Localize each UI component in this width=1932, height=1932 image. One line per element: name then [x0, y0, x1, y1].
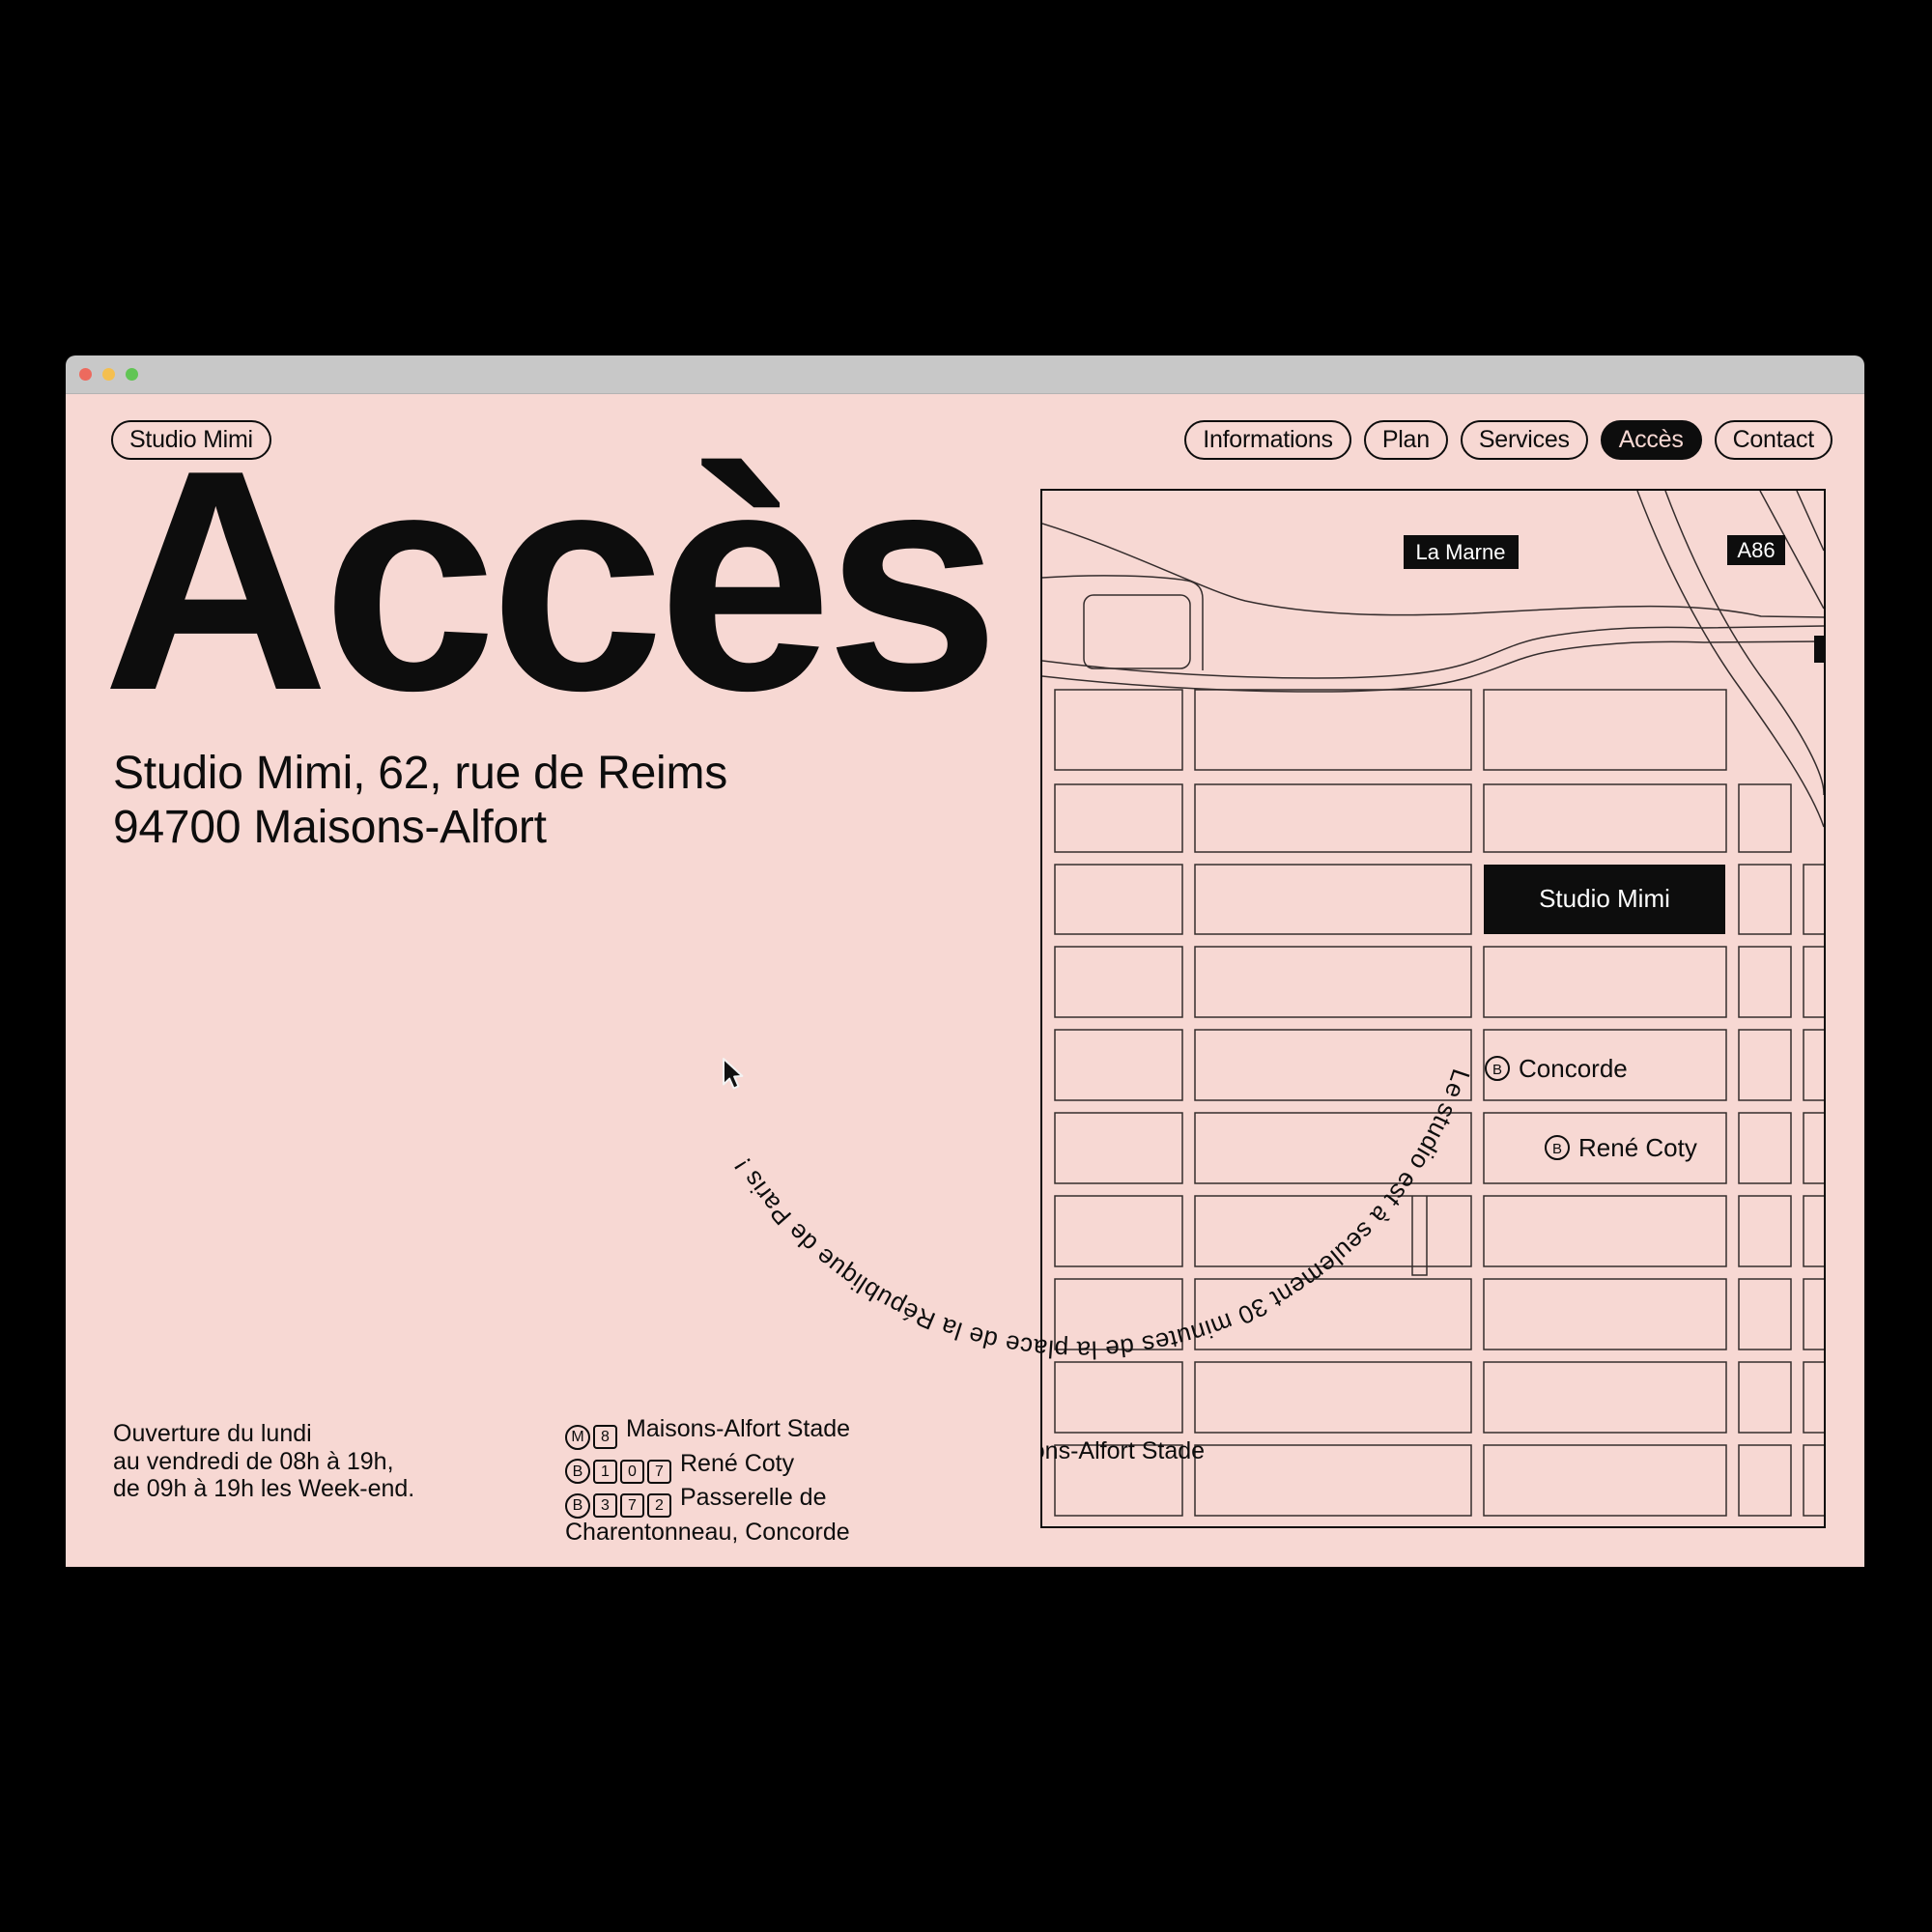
nav-item-acces[interactable]: Accès [1601, 420, 1702, 460]
studio-address: Studio Mimi, 62, rue de Reims 94700 Mais… [113, 747, 727, 855]
bus-stop-icon-letter: B [1492, 1062, 1502, 1078]
studio-marker-label: Studio Mimi [1539, 884, 1670, 913]
transit-stop-name: Maisons-Alfort Stade [626, 1415, 850, 1442]
bus-digit-icon: 1 [593, 1460, 617, 1484]
transit-line-metro: M8Maisons-Alfort Stade [565, 1415, 942, 1450]
bridge-mark [1814, 636, 1824, 663]
nav-item-plan[interactable]: Plan [1364, 420, 1448, 460]
minimize-window-button[interactable] [102, 368, 115, 381]
address-line-2: 94700 Maisons-Alfort [113, 801, 727, 855]
close-window-button[interactable] [79, 368, 92, 381]
station-rene-coty-label: René Coty [1578, 1133, 1697, 1162]
bus-digit-icon: 7 [647, 1460, 671, 1484]
metro-line-8-icon: 8 [593, 1425, 617, 1449]
curved-street-upper [1042, 626, 1824, 678]
slip-road-2 [1797, 491, 1824, 551]
hours-line-2: au vendredi de 08h à 19h, [113, 1448, 414, 1476]
bus-digit-icon: 0 [620, 1460, 644, 1484]
main-nav: Informations Plan Services Accès Contact [1184, 420, 1833, 460]
river-label: La Marne [1416, 540, 1506, 564]
curved-street-lower [1042, 641, 1824, 692]
transit-stop-name: René Coty [680, 1450, 794, 1477]
bus-digit-icon: 7 [620, 1493, 644, 1518]
mouse-cursor-icon [721, 1057, 753, 1094]
stade-label: Maisons-Alfort Stade [1042, 1437, 1205, 1464]
titlebar [66, 355, 1864, 394]
bus-digit-icon: 2 [647, 1493, 671, 1518]
transit-access-list: M8Maisons-Alfort Stade B107René Coty B37… [565, 1415, 942, 1547]
hours-line-3: de 09h à 19h les Week-end. [113, 1475, 414, 1503]
dead-end-street [1412, 1196, 1427, 1275]
motorway-label: A86 [1737, 538, 1775, 562]
bus-icon: B [565, 1493, 590, 1519]
bus-stop-icon-letter: B [1552, 1141, 1562, 1157]
page: Studio Mimi Informations Plan Services A… [66, 394, 1864, 1567]
hours-line-1: Ouverture du lundi [113, 1420, 414, 1448]
map-labels: La Marne A86 Studio Mimi B Concorde B Re… [1042, 535, 1785, 1464]
metro-icon: M [565, 1425, 590, 1450]
transit-line-bus-372: B372Passerelle de Charentonneau, Concord… [565, 1484, 942, 1547]
address-line-1: Studio Mimi, 62, rue de Reims [113, 747, 727, 801]
map-block-grid [1055, 690, 1824, 1516]
riverside-street [1042, 576, 1203, 670]
access-map: La Marne A86 Studio Mimi B Concorde B Re… [1040, 489, 1826, 1528]
transit-line-bus-107: B107René Coty [565, 1450, 942, 1485]
bus-digit-icon: 3 [593, 1493, 617, 1518]
opening-hours: Ouverture du lundi au vendredi de 08h à … [113, 1420, 414, 1503]
nav-item-services[interactable]: Services [1461, 420, 1588, 460]
station-concorde-label: Concorde [1519, 1054, 1628, 1083]
rounded-block [1084, 595, 1190, 668]
bus-icon: B [565, 1459, 590, 1484]
browser-window: Studio Mimi Informations Plan Services A… [66, 355, 1864, 1567]
nav-item-contact[interactable]: Contact [1715, 420, 1833, 460]
page-title: Accès [102, 423, 993, 737]
map-illustration: La Marne A86 Studio Mimi B Concorde B Re… [1042, 491, 1824, 1526]
nav-item-informations[interactable]: Informations [1184, 420, 1351, 460]
zoom-window-button[interactable] [126, 368, 138, 381]
